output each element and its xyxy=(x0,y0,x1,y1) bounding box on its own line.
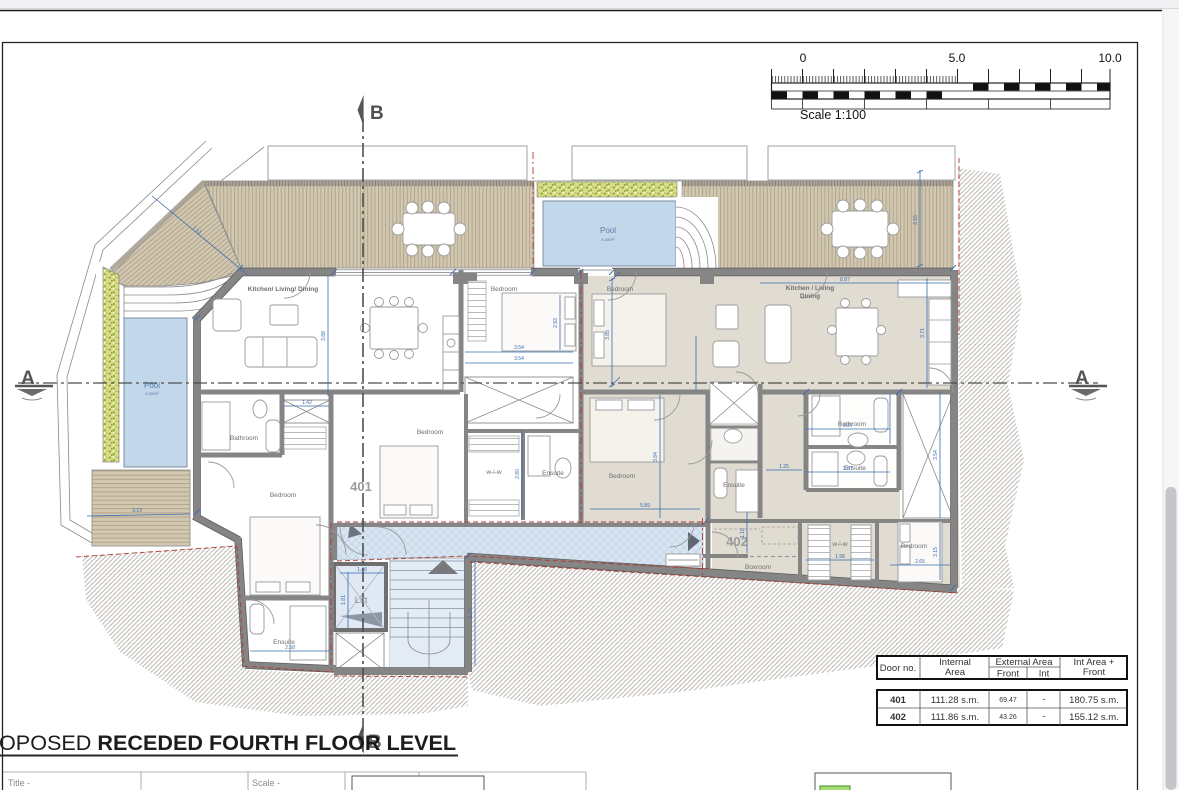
svg-text:3.88: 3.88 xyxy=(321,331,327,341)
svg-text:Bedroom: Bedroom xyxy=(607,286,633,293)
svg-text:3.54: 3.54 xyxy=(514,356,524,362)
svg-text:External Area: External Area xyxy=(995,657,1053,668)
svg-text:x.xxm²: x.xxm² xyxy=(601,237,615,242)
svg-text:43.26: 43.26 xyxy=(999,714,1017,721)
svg-text:402: 402 xyxy=(890,712,906,723)
svg-text:Scale -: Scale - xyxy=(252,778,280,788)
svg-text:2.80: 2.80 xyxy=(515,469,521,479)
svg-text:Bedroom: Bedroom xyxy=(901,543,927,550)
svg-text:3.13: 3.13 xyxy=(132,508,142,514)
svg-text:1.81: 1.81 xyxy=(341,595,347,605)
svg-text:10.0: 10.0 xyxy=(1098,51,1122,65)
svg-text:1.98: 1.98 xyxy=(835,554,845,560)
svg-text:69.47: 69.47 xyxy=(999,697,1017,704)
svg-text:Pool: Pool xyxy=(600,226,616,235)
svg-text:3.15: 3.15 xyxy=(933,547,939,557)
svg-text:Lift: Lift xyxy=(355,595,368,606)
svg-text:Bedroom: Bedroom xyxy=(270,492,296,499)
svg-text:Bedroom: Bedroom xyxy=(417,429,443,436)
svg-text:1.77: 1.77 xyxy=(468,608,474,618)
svg-text:2.93: 2.93 xyxy=(553,318,559,328)
svg-text:3.85: 3.85 xyxy=(605,330,611,340)
svg-text:Front: Front xyxy=(1083,667,1106,678)
svg-text:w-i-w: w-i-w xyxy=(831,541,847,548)
svg-text:5.0: 5.0 xyxy=(949,51,966,65)
svg-text:3.15: 3.15 xyxy=(913,215,919,225)
svg-text:8.87: 8.87 xyxy=(840,277,850,283)
svg-text:3.71: 3.71 xyxy=(920,328,926,338)
svg-text:Ensuite: Ensuite xyxy=(723,482,745,489)
svg-text:2.87: 2.87 xyxy=(843,423,853,429)
svg-text:Boxroom: Boxroom xyxy=(745,564,771,571)
svg-text:3.54: 3.54 xyxy=(933,450,939,460)
svg-text:Pool: Pool xyxy=(144,381,160,390)
svg-text:B: B xyxy=(370,103,384,124)
svg-text:111.28 s.m.: 111.28 s.m. xyxy=(931,695,979,706)
svg-text:Kitchen / Living: Kitchen / Living xyxy=(786,285,834,292)
svg-text:Title -: Title - xyxy=(8,778,30,788)
svg-text:2.58: 2.58 xyxy=(285,645,295,651)
svg-text:1.46: 1.46 xyxy=(357,567,367,573)
svg-text:Door no.: Door no. xyxy=(880,663,916,674)
svg-text:0: 0 xyxy=(800,51,807,65)
svg-text:155.12 s.m.: 155.12 s.m. xyxy=(1069,712,1119,723)
svg-text:2.87: 2.87 xyxy=(843,466,853,472)
svg-text:1.25: 1.25 xyxy=(779,464,789,470)
svg-text:Front: Front xyxy=(997,669,1020,680)
svg-text:x.xxm²: x.xxm² xyxy=(145,391,159,396)
svg-text:5.89: 5.89 xyxy=(640,503,650,509)
svg-text:OPOSED RECEDED FOURTH FLOOR LE: OPOSED RECEDED FOURTH FLOOR LEVEL xyxy=(0,730,456,755)
svg-text:Scale 1:100: Scale 1:100 xyxy=(800,108,866,122)
svg-text:Ensuite: Ensuite xyxy=(542,470,564,477)
svg-text:401: 401 xyxy=(890,695,907,706)
svg-text:3.84: 3.84 xyxy=(653,452,659,462)
svg-text:2.65: 2.65 xyxy=(915,559,925,565)
svg-text:Kitchen/ Living/ Dining: Kitchen/ Living/ Dining xyxy=(248,286,318,293)
svg-text:w-i-w: w-i-w xyxy=(485,469,501,476)
svg-text:-: - xyxy=(1042,711,1045,722)
svg-text:-: - xyxy=(1042,694,1045,705)
svg-text:Area: Area xyxy=(945,667,966,678)
svg-text:Int: Int xyxy=(1039,669,1050,680)
svg-text:3.54: 3.54 xyxy=(514,345,524,351)
svg-text:1.42: 1.42 xyxy=(302,400,312,406)
svg-text:401: 401 xyxy=(350,479,372,494)
svg-text:Bedroom: Bedroom xyxy=(491,286,517,293)
svg-text:180.75 s.m.: 180.75 s.m. xyxy=(1069,695,1119,706)
svg-text:Dining: Dining xyxy=(800,293,820,300)
svg-text:111.86 s.m.: 111.86 s.m. xyxy=(931,712,979,723)
svg-text:1.16: 1.16 xyxy=(740,528,746,538)
svg-text:Bathroom: Bathroom xyxy=(230,435,258,442)
svg-text:Bedroom: Bedroom xyxy=(609,473,635,480)
